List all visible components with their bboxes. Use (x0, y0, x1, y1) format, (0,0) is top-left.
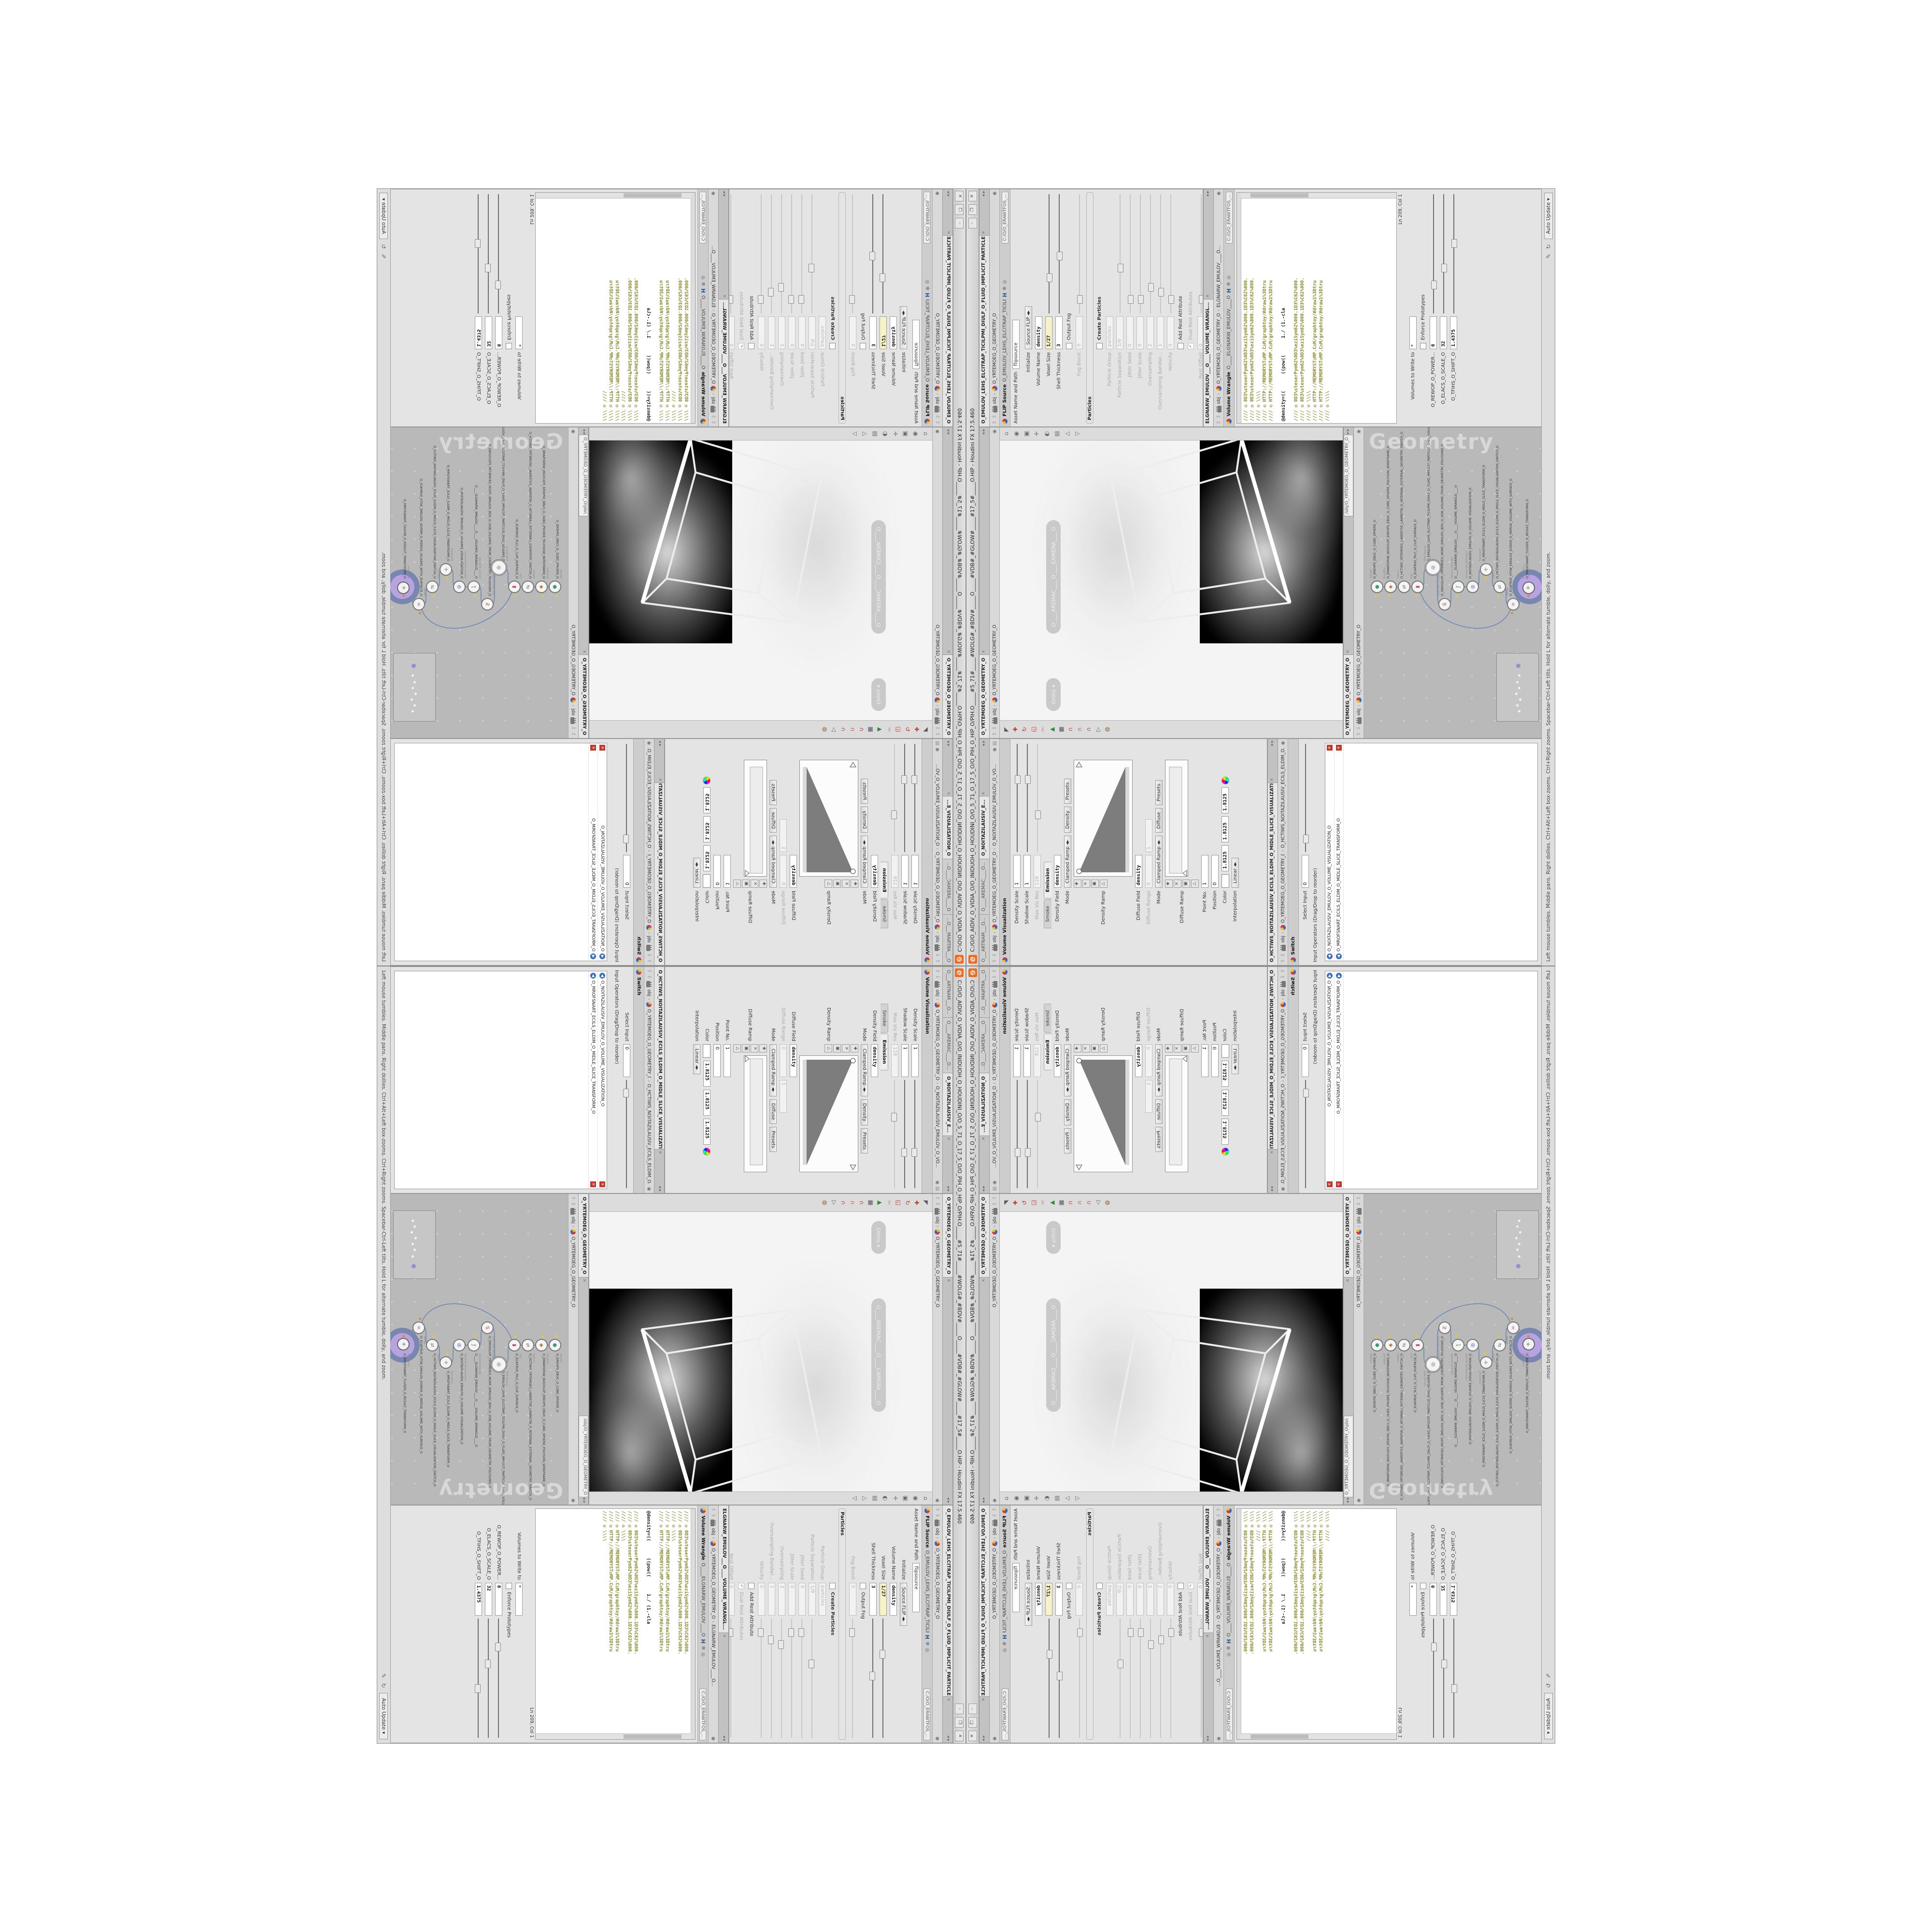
network-path-field[interactable]: /obj/O_YRTEMOEG_O_GEOMETRY_O (1344, 435, 1353, 516)
panel-icon[interactable]: ▤ (935, 741, 940, 745)
dropdown[interactable]: Linear ◂▸ (693, 1044, 700, 1074)
brush-icon[interactable]: ✎ (1545, 254, 1552, 258)
tab-flip-source[interactable]: O_EMULOV_LEHS_ELCITRAP_TICILPMI_DIULF_O_… (980, 235, 989, 426)
pin-icon[interactable]: ◉ (935, 191, 940, 196)
sim-cache-icon[interactable]: ▽ (1074, 431, 1080, 436)
param-slider[interactable] (870, 1619, 876, 1740)
param-field[interactable]: 3 (869, 1583, 877, 1616)
material-icon[interactable]: ◍ (1104, 727, 1110, 732)
nav-up-icon[interactable]: ⇧ (1216, 421, 1222, 425)
nav-down-icon[interactable]: ⇩ (647, 975, 652, 979)
param-slider[interactable] (789, 192, 795, 313)
pane-menu-icon[interactable]: ◂ (654, 1186, 664, 1190)
dropdown[interactable]: Clamped Ramp ◂▸ (1064, 836, 1071, 888)
search-icon[interactable]: ◎ (1226, 275, 1232, 280)
pin-icon[interactable]: ◉ (647, 741, 652, 745)
crumb-node[interactable]: O_HCTIWS_NOITAZILAUSIV_ECILS_ELDIM_O... (647, 1084, 652, 1185)
tab-camera[interactable]: O____AREMAC____O... (980, 859, 989, 914)
pin-view-icon[interactable]: ◉ (1013, 1496, 1020, 1501)
asset-name-field[interactable]: flipsource (1012, 320, 1020, 369)
tab-switch[interactable]: O_HCTIWS_NOITAZILAUSIV_ECILS_ELDIM_O_MID… (1268, 782, 1278, 965)
crumb-geometry[interactable]: O_YRTEMOEG_O_GEOMETRY_O (1280, 854, 1286, 923)
home-view-icon[interactable]: ⌂ (923, 432, 929, 436)
crumb-obj[interactable]: obj (992, 1528, 997, 1535)
crumb-geometry[interactable]: O_YRTEMOEG_O_GEOMETRY_O (571, 1236, 576, 1307)
gear-icon[interactable]: ✻ (1226, 282, 1232, 286)
crumb-geometry[interactable]: O_YRTEMOEG_O_GEOMETRY_O (1356, 625, 1362, 696)
move-input-icon[interactable]: ◀ (590, 973, 596, 979)
crumb-obj[interactable]: obj (1280, 989, 1286, 996)
param-field[interactable]: 1 (1145, 819, 1152, 852)
ramp-tool-icon[interactable]: △ (824, 1044, 832, 1052)
tab-close-icon[interactable]: ✕ (579, 1278, 588, 1284)
color-wheel-icon[interactable] (1222, 777, 1229, 784)
param-field[interactable]: 6 (495, 1583, 502, 1616)
nav-down-icon[interactable]: ⇩ (571, 726, 576, 730)
button-density[interactable]: Density (1064, 807, 1071, 833)
network-minimap[interactable] (1496, 1210, 1539, 1279)
param-field[interactable]: 1 (1023, 855, 1031, 888)
search-icon[interactable]: ◎ (1002, 280, 1008, 284)
param-field[interactable]: 0 (713, 1044, 721, 1077)
pin-view-icon[interactable]: ◉ (912, 431, 919, 436)
dropdown[interactable]: Source FLIP ◂▸ (1025, 1583, 1032, 1626)
ramp-editor[interactable] (744, 1055, 767, 1172)
node-flag[interactable] (1497, 595, 1500, 597)
node-merge[interactable]: ≡ (1507, 598, 1520, 611)
pin-icon[interactable]: ◉ (935, 1498, 940, 1503)
param-field[interactable]: 1 (1157, 316, 1164, 349)
viewport-content[interactable]: ◤✚↻◱✂▲▦∩∩∩▷◍ ⌂◉▣✛◐▤△▽ Ortho ▾ O____AREMA… (589, 1194, 932, 1505)
crumb-geometry[interactable]: O_YRTEMOEG_O_GEOMETRY_O (1280, 1009, 1286, 1078)
node-volume-visualization[interactable]: ◍ (453, 581, 466, 593)
pin-icon[interactable]: ◉ (935, 747, 940, 752)
color-value-field[interactable]: 1.8125 (703, 1119, 710, 1145)
panel-icon[interactable]: ▤ (992, 741, 997, 745)
node-flag[interactable] (474, 1335, 476, 1337)
network-path-field[interactable]: /obj/O_YRTEMOEG_O_GEOMETRY_O (579, 435, 588, 516)
code-vscrollbar[interactable] (1241, 1733, 1396, 1739)
crumb-geometry[interactable]: O_YRTEMOEG_O_GEOMETRY_O (992, 1236, 997, 1307)
translate-handle-icon[interactable]: ✚ (1012, 727, 1019, 732)
pane-split-icon[interactable]: ▸ (1268, 739, 1278, 743)
param-slider[interactable] (1451, 192, 1457, 313)
color-swatch[interactable] (1222, 1044, 1229, 1058)
node-clip[interactable]: ▮ (1411, 1339, 1424, 1351)
param-slider[interactable] (902, 1080, 908, 1190)
crumb-geometry[interactable]: O_YRTEMOEG_O_GEOMETRY_O (992, 852, 997, 923)
param-field[interactable]: 0 (1126, 316, 1134, 349)
param-slider[interactable] (1024, 742, 1030, 852)
material-icon[interactable]: ◍ (822, 1200, 828, 1205)
pane-split-icon[interactable]: ▸ (654, 739, 664, 743)
node-transform[interactable]: ✛ (1480, 563, 1492, 576)
folder-tab-smoke[interactable]: Smoke (1044, 899, 1051, 928)
param-slider[interactable] (892, 1080, 898, 1190)
tab-close-icon[interactable]: ✕ (943, 790, 952, 796)
home-view-icon[interactable]: ⌂ (923, 1496, 929, 1500)
crumb-obj[interactable]: obj (571, 1217, 576, 1223)
node-sphere[interactable]: ● (549, 581, 561, 593)
magnet-edge-icon[interactable]: ∩ (1085, 727, 1092, 732)
param-slider[interactable] (789, 1619, 795, 1740)
pin-icon[interactable]: ◉ (1216, 1736, 1222, 1741)
node-flag[interactable] (1497, 1335, 1500, 1337)
magnet-prim-icon[interactable]: ∩ (1076, 727, 1083, 732)
color-swatch[interactable] (703, 1044, 711, 1058)
param-slider[interactable] (779, 1619, 785, 1740)
dropdown[interactable]: Clamped Ramp ◂▸ (861, 1044, 868, 1096)
move-input-icon[interactable]: ◀ (599, 973, 605, 979)
render-flipbook-icon[interactable]: ▷ (831, 727, 838, 731)
color-value-field[interactable]: 1.8125 (703, 816, 710, 842)
tab-geometry-view[interactable]: O_YRTEMOEG_O_GEOMETRY_O (980, 654, 989, 738)
close-button[interactable]: ✕ (968, 191, 977, 201)
ramp-tool-icon[interactable]: ✕ (1082, 1044, 1090, 1052)
crumb-geometry[interactable]: O_YRTEMOEG_O_GEOMETRY_O (992, 1548, 997, 1619)
param-field[interactable]: 1 (1013, 1044, 1021, 1077)
node-flag[interactable] (402, 595, 405, 597)
param-slider[interactable] (1168, 192, 1174, 313)
ramp-editor[interactable] (799, 1055, 858, 1172)
nav-down-icon[interactable]: ⇩ (935, 953, 940, 957)
nav-down-icon[interactable]: ⇩ (711, 1513, 716, 1517)
asset-name-field[interactable]: flipsource (913, 1563, 920, 1612)
brush-icon[interactable]: ✎ (381, 1674, 387, 1678)
viewport-content[interactable]: ◤✚↻◱✂▲▦∩∩∩▷◍ ⌂◉▣✛◐▤△▽ Ortho ▾ O____AREMA… (1000, 427, 1343, 738)
checkbox[interactable] (1066, 1583, 1072, 1589)
param-slider[interactable] (1056, 1619, 1062, 1740)
param-field[interactable]: 0 (729, 1583, 735, 1616)
pin-icon[interactable]: ◉ (992, 191, 997, 196)
translate-handle-icon[interactable]: ✚ (913, 1200, 920, 1205)
param-slider[interactable] (1127, 1619, 1133, 1740)
ramp-editor[interactable] (799, 760, 858, 877)
checkbox[interactable] (1420, 343, 1426, 349)
nav-up-icon[interactable]: ⇧ (571, 732, 576, 736)
param-slider[interactable] (1137, 192, 1143, 313)
material-icon[interactable]: ◍ (1104, 1200, 1110, 1205)
pose-handle-icon[interactable]: ✂ (1039, 727, 1046, 732)
param-slider[interactable] (1148, 192, 1153, 313)
tab-volume-wrangle[interactable]: ELGNARW_EMULOV___O____VOLUME_WRANGL... (719, 1506, 728, 1633)
node-flag[interactable] (432, 1335, 435, 1337)
param-field[interactable]: 0 (1145, 1044, 1152, 1077)
node-volume-visualization[interactable]: ◍ (1466, 1339, 1479, 1351)
tab-close-icon[interactable]: ✕ (943, 1697, 952, 1704)
tab-close-icon[interactable]: ✕ (943, 648, 952, 654)
pin-icon[interactable]: ◉ (935, 429, 940, 434)
node-name[interactable]: O_EMULOV_LEHS_ELCITRAP_TICILPMI_DI (924, 1550, 930, 1633)
param-field[interactable]: density (890, 316, 897, 349)
code-vscrollbar[interactable] (536, 193, 691, 199)
search-icon[interactable]: ◎ (924, 280, 930, 284)
param-field[interactable]: 1/27 (1045, 1583, 1052, 1616)
pane-menu-icon[interactable]: ◂ (1268, 1186, 1278, 1190)
pin-icon[interactable]: ◉ (1280, 1187, 1286, 1191)
dropdown[interactable]: Clamped Ramp ◂▸ (861, 836, 868, 888)
node-name[interactable]: O____ELGNARW_EMULOV____O (700, 1563, 706, 1636)
tab-close-icon[interactable]: ✕ (719, 1633, 728, 1640)
param-field[interactable]: 32 (1440, 316, 1447, 349)
param-slider[interactable] (1158, 1619, 1164, 1740)
camera-lock-icon[interactable]: △ (1064, 1496, 1070, 1500)
param-slider[interactable] (912, 742, 918, 852)
param-slider[interactable] (1046, 192, 1052, 313)
checkbox[interactable] (829, 1583, 836, 1589)
tab-flip-source[interactable]: O_EMULOV_LEHS_ELCITRAP_TICILPMI_DIULF_O_… (980, 1506, 989, 1697)
param-field[interactable]: 1/9 (809, 1583, 816, 1616)
delete-input-icon[interactable]: ✕ (1336, 1181, 1342, 1187)
crumb-obj[interactable]: obj (935, 936, 940, 942)
node-flag[interactable] (402, 1335, 405, 1337)
asset-name-field[interactable]: flipsource (913, 320, 920, 369)
param-slider[interactable] (1198, 1619, 1203, 1740)
param-slider[interactable] (486, 1619, 492, 1740)
scale-handle-icon[interactable]: ◱ (1030, 1200, 1037, 1205)
pin-view-icon[interactable]: ◉ (912, 1496, 919, 1501)
ramp-tool-icon[interactable]: ✚ (1165, 1044, 1173, 1052)
refresh-icon[interactable]: ↻ (1545, 1683, 1552, 1688)
pane-split-icon[interactable]: ▸ (579, 427, 588, 431)
color-value-field[interactable]: 1.8125 (703, 1061, 710, 1087)
nav-down-icon[interactable]: ⇩ (992, 1202, 997, 1206)
node-flag[interactable] (1415, 595, 1418, 597)
pane-split-icon[interactable]: ▸ (980, 1739, 989, 1743)
node-clip[interactable]: ▮ (1411, 581, 1424, 593)
input-operator-row[interactable]: ◀O_NOITAZILAUSIV_EMULOV_O_VOLUME_VISUALI… (597, 971, 607, 1189)
asset-name-field[interactable]: flipsource (1012, 1563, 1020, 1612)
pane-menu-icon[interactable]: ◂ (980, 431, 989, 435)
tab-close-icon[interactable]: ✕ (1268, 776, 1278, 782)
param-slider[interactable] (476, 1619, 482, 1740)
param-field[interactable]: 0 (623, 855, 630, 888)
crumb-obj[interactable]: obj (992, 709, 997, 715)
minimize-button[interactable]: – (968, 218, 977, 228)
pin-icon[interactable]: ◉ (992, 1736, 997, 1741)
dropdown[interactable]: Clamped Ramp ◂▸ (1155, 836, 1163, 888)
ramp-tool-icon[interactable]: △ (1100, 880, 1108, 888)
layout-single-icon[interactable]: ▣ (1023, 1495, 1030, 1501)
display-options-icon[interactable]: ▤ (1053, 1495, 1060, 1501)
param-field[interactable]: 0 (758, 1583, 765, 1616)
param-field[interactable]: particles (819, 316, 826, 349)
param-field[interactable]: 0 (798, 316, 806, 349)
node-switch[interactable]: ⇄ (426, 581, 439, 593)
tab-geometry-network[interactable]: O_YRTEMOEG_O_GEOMETRY_O (579, 1194, 588, 1278)
input-operator-row[interactable]: ◀O_MROFSNART_ECILS_ELDIM_O_MIDLE_SLICE_T… (588, 971, 597, 1189)
nav-up-icon[interactable]: ⇧ (571, 1196, 576, 1200)
rotate-handle-icon[interactable]: ↻ (904, 1200, 911, 1205)
move-input-icon[interactable]: ◀ (1327, 973, 1333, 979)
node-transform[interactable]: ✛ (440, 1356, 452, 1369)
color-wheel-icon[interactable] (703, 1148, 711, 1155)
nav-up-icon[interactable]: ⇧ (935, 959, 940, 963)
pane-split-icon[interactable]: ▸ (1344, 1501, 1353, 1505)
param-field[interactable]: 0 (788, 1583, 796, 1616)
node-flag[interactable] (1484, 577, 1486, 580)
folder-tab-emission[interactable]: Emission (881, 862, 888, 898)
param-slider[interactable] (624, 742, 630, 852)
search-icon[interactable]: ◎ (700, 1652, 706, 1657)
view-cone-icon[interactable]: ▲ (1049, 1200, 1055, 1205)
close-button[interactable]: ✕ (955, 191, 964, 201)
crumb-node[interactable]: O_NOITAZILAUSIV_EMULOV_O_VO... (935, 765, 940, 846)
layout-quad-icon[interactable]: ✛ (1033, 1496, 1040, 1501)
node-vdb-from-polygons[interactable]: S (1438, 1321, 1451, 1334)
pane-menu-icon[interactable]: ◂ (654, 743, 664, 747)
dropdown[interactable]: Clamped Ramp ◂▸ (769, 1044, 777, 1096)
param-field[interactable]: * (515, 1583, 523, 1616)
crumb-geometry[interactable]: O_YRTEMOEG_O_GEOMETRY_O (711, 1548, 716, 1619)
node-switch[interactable]: ⇄ (1493, 581, 1506, 593)
tab-close-icon[interactable]: ✕ (579, 648, 588, 654)
translate-handle-icon[interactable]: ✚ (913, 727, 920, 732)
crumb-obj[interactable]: obj (1356, 709, 1362, 715)
view-mode-capsule[interactable]: Ortho ▾ (1046, 1221, 1061, 1254)
nav-up-icon[interactable]: ⇧ (1216, 1507, 1222, 1511)
param-slider[interactable] (1431, 192, 1436, 313)
crumb-obj[interactable]: obj (711, 1528, 716, 1535)
ramp-tool-icon[interactable]: ▣ (1091, 880, 1099, 888)
render-flipbook-icon[interactable]: ▷ (1094, 727, 1101, 731)
param-slider[interactable] (1046, 1619, 1052, 1740)
viewport-content[interactable]: ◤✚↻◱✂▲▦∩∩∩▷◍ ⌂◉▣✛◐▤△▽ Ortho ▾ O____AREMA… (589, 427, 932, 738)
param-slider[interactable] (1431, 1619, 1436, 1740)
param-field[interactable]: 3 (1055, 1583, 1063, 1616)
gear-icon[interactable]: ✻ (1226, 1646, 1232, 1650)
node-polywire[interactable]: ◆ (1384, 581, 1397, 593)
param-field[interactable]: density (871, 1044, 878, 1077)
param-field[interactable]: * (1409, 1583, 1417, 1616)
nav-up-icon[interactable]: ⇧ (1356, 1196, 1362, 1200)
tab-camera[interactable]: O____AREMAC____O... (980, 1018, 989, 1073)
button-diffuse[interactable]: Diffuse (1155, 1099, 1163, 1124)
code-vscrollbar[interactable] (1241, 193, 1396, 199)
node-merge[interactable]: ≡ (1507, 1321, 1520, 1334)
checkbox[interactable] (748, 343, 754, 349)
tab-geometry-view[interactable]: O_YRTEMOEG_O_GEOMETRY_O (980, 1194, 989, 1278)
code-hscrollbar[interactable] (1237, 1509, 1241, 1739)
pin-icon[interactable]: ◉ (711, 191, 716, 196)
button-presets[interactable]: Presets (1064, 1128, 1071, 1153)
search-icon[interactable]: ◎ (924, 1648, 930, 1652)
ramp-tool-icon[interactable]: ▣ (742, 880, 750, 888)
input-operator-row[interactable]: ◀O_MROFSNART_ECILS_ELDIM_O_MIDLE_SLICE_T… (588, 743, 597, 961)
param-field[interactable]: density (1035, 1583, 1042, 1616)
ramp-editor[interactable] (1074, 1055, 1133, 1172)
gear-icon[interactable]: ✻ (700, 1646, 706, 1650)
node-switch[interactable]: ⇄ (426, 1339, 439, 1351)
crumb-node[interactable]: ELGNARW_EMULOV____O... (711, 246, 716, 308)
magnet-point-icon[interactable]: ∩ (1067, 1201, 1074, 1205)
tab-visualization[interactable]: O_NOITAZILAUSIV_E... (980, 796, 989, 859)
pane-menu-icon[interactable]: ◂ (1204, 193, 1213, 197)
auto-update-selector[interactable]: Auto Update ▾ (380, 193, 388, 239)
ramp-editor[interactable] (1074, 760, 1133, 877)
param-field[interactable]: 0 (1136, 316, 1144, 349)
param-field[interactable]: 1.4375 (1450, 1583, 1457, 1616)
pose-handle-icon[interactable]: ✂ (886, 1200, 893, 1205)
param-field[interactable]: 0 (849, 1583, 856, 1616)
param-slider[interactable] (1441, 192, 1447, 313)
pane-split-icon[interactable]: ▸ (980, 1189, 989, 1193)
color-swatch[interactable] (1222, 874, 1229, 888)
ramp-tool-icon[interactable]: ✕ (842, 880, 850, 888)
shade-mode-icon[interactable]: ◐ (1043, 431, 1050, 436)
crumb-obj[interactable]: obj (992, 397, 997, 404)
nav-up-icon[interactable]: ⇧ (1356, 732, 1362, 736)
camera-name-capsule[interactable]: O____AREMAC____O____CAMERA____O (871, 520, 886, 634)
magnet-prim-icon[interactable]: ∩ (849, 1201, 856, 1205)
node-volume-wrangle[interactable]: ƒ (468, 581, 480, 593)
node-name[interactable]: O_EMULOV_LEHS_ELCITRAP_TICILPMI_DI (1002, 1550, 1008, 1633)
color-value-field[interactable]: 1.8125 (1222, 1090, 1229, 1116)
auto-update-selector[interactable]: Auto Update ▾ (1544, 1693, 1553, 1739)
tab-close-icon[interactable]: ✕ (943, 228, 952, 235)
param-field[interactable]: 32 (1440, 1583, 1447, 1616)
pin-icon[interactable]: ◉ (571, 429, 576, 434)
network-canvas[interactable]: Geometry ●SphereO_EREHPS_EBUC_O_CUBE_SPH… (390, 427, 568, 738)
ramp-tool-icon[interactable]: ▣ (833, 1044, 841, 1052)
param-slider[interactable] (799, 1619, 805, 1740)
network-path-field[interactable]: /obj/O_YRTEMOEG_O_GEOMETRY_O (579, 1416, 588, 1497)
param-slider[interactable] (1198, 192, 1203, 313)
crumb-obj[interactable]: obj (647, 936, 652, 942)
nav-up-icon[interactable]: ⇧ (935, 421, 940, 425)
nav-up-icon[interactable]: ⇧ (647, 969, 652, 973)
tab-close-icon[interactable]: ✕ (943, 1278, 952, 1284)
param-field[interactable]: 0 (780, 855, 787, 888)
node-flag[interactable] (1442, 1318, 1445, 1320)
select-arrow-icon[interactable]: ◤ (923, 1200, 929, 1205)
tab-visualization[interactable]: O_NOITAZILAUSIV_E... (943, 1073, 952, 1136)
ramp-tool-icon[interactable]: ✕ (1082, 880, 1090, 888)
param-field[interactable]: 128 (1034, 1044, 1041, 1077)
param-slider[interactable] (1441, 1619, 1447, 1740)
param-slider[interactable] (496, 192, 502, 313)
node-flag[interactable] (1527, 595, 1530, 597)
crumb-obj[interactable]: obj (571, 709, 576, 715)
input-operator-row[interactable]: ◀O_MROFSNART_ECILS_ELDIM_O_MIDLE_SLICE_T… (1335, 743, 1344, 961)
input-operator-row[interactable]: ◀O_NOITAZILAUSIV_EMULOV_O_VOLUME_VISUALI… (1325, 743, 1335, 961)
folder-tab-smoke[interactable]: Smoke (881, 899, 888, 928)
input-operator-row[interactable]: ◀O_NOITAZILAUSIV_EMULOV_O_VOLUME_VISUALI… (1325, 971, 1335, 1189)
tab-volume-wrangle[interactable]: ELGNARW_EMULOV___O____VOLUME_WRANGL... (1204, 299, 1213, 426)
param-field[interactable]: particles (1106, 1583, 1113, 1616)
checkbox[interactable] (1096, 343, 1103, 349)
tab-close-icon[interactable]: ✕ (654, 1150, 664, 1156)
param-slider[interactable] (850, 1619, 856, 1740)
node-flag[interactable] (419, 1318, 421, 1320)
display-options-icon[interactable]: ▤ (872, 431, 879, 436)
color-value-field[interactable]: 1.8125 (703, 845, 710, 871)
vex-code-editor[interactable]: //// ◎ 0D3%steserPym62%0D3%eziSym62%000.… (1236, 192, 1397, 424)
param-slider[interactable] (870, 192, 876, 313)
pin-view-icon[interactable]: ◉ (1013, 431, 1020, 436)
checkbox[interactable] (860, 1583, 866, 1589)
camera-name-capsule[interactable]: O____AREMAC____O____CAMERA____O (1046, 1298, 1061, 1412)
button-density[interactable]: Density (861, 807, 868, 833)
delete-input-icon[interactable]: ✕ (590, 1181, 596, 1187)
tab-visualization[interactable]: O_NOITAZILAUSIV_E... (943, 796, 952, 859)
node-name[interactable]: O____ELGNARW_EMULOV____O (700, 296, 706, 369)
node-flag[interactable] (514, 595, 517, 597)
node-flag[interactable] (1388, 595, 1391, 597)
param-field[interactable]: 3 (869, 316, 877, 349)
scale-handle-icon[interactable]: ◱ (895, 1200, 902, 1205)
ramp-tool-icon[interactable]: ✕ (1174, 880, 1181, 888)
